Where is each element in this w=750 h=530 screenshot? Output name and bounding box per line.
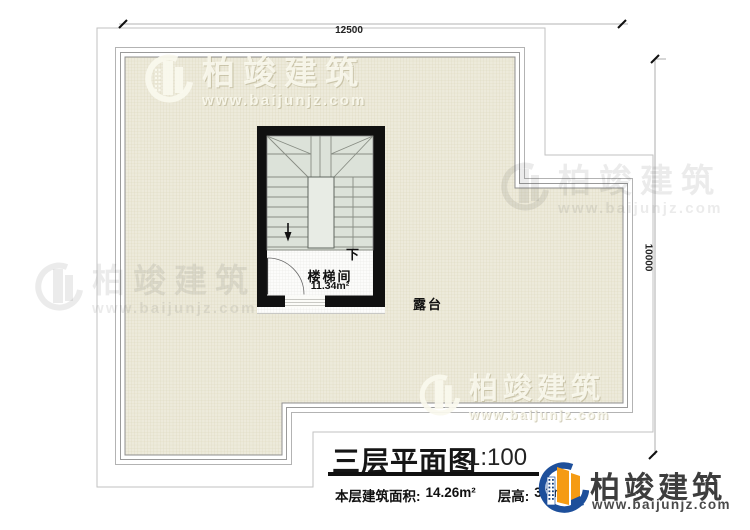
brand-logo-icon: [535, 459, 589, 521]
floor-area-label: 本层建筑面积:: [335, 485, 421, 505]
brand-url: www.baijunjz.com: [592, 497, 731, 512]
terrace-label: 露台: [413, 294, 443, 313]
plan-scale: 1:100: [467, 444, 527, 472]
floor-plan-sheet: 柏竣建筑 www.baijunjz.com 柏竣建筑 www.baijunjz.…: [0, 0, 750, 530]
title-underline: [328, 472, 539, 476]
plan-stats: 本层建筑面积: 14.26m² 层高: 3.3m: [335, 485, 565, 505]
dimension-width-label: 12500: [320, 25, 378, 36]
stair-well: [308, 177, 334, 248]
floor-height-label: 层高:: [498, 485, 530, 505]
floor-area-value: 14.26m²: [426, 485, 476, 505]
dimension-height-label: 10000: [643, 228, 654, 288]
stair-down-label: 下: [346, 244, 359, 263]
threshold-strip: [257, 307, 385, 314]
stairwell-area-label: 11.34m²: [298, 280, 362, 292]
